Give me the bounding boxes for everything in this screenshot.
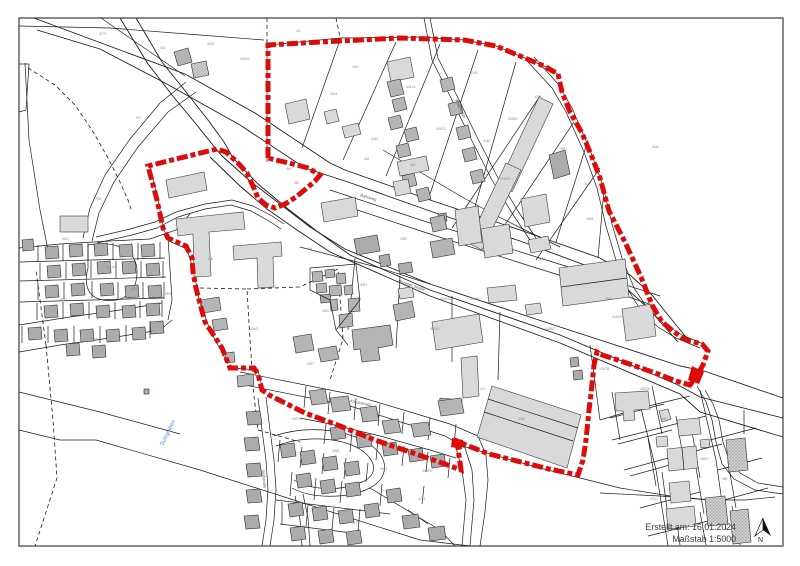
svg-text:463: 463	[410, 163, 416, 167]
svg-text:4040/2: 4040/2	[436, 127, 446, 131]
svg-text:4048: 4048	[538, 257, 545, 261]
svg-text:4049/3: 4049/3	[612, 315, 622, 319]
svg-text:4060/5: 4060/5	[422, 469, 432, 473]
svg-text:4037: 4037	[560, 147, 567, 151]
svg-text:4057: 4057	[62, 237, 69, 241]
svg-text:403: 403	[160, 46, 166, 50]
svg-text:461: 461	[286, 167, 292, 171]
svg-text:462: 462	[364, 157, 370, 161]
svg-text:4061/2: 4061/2	[106, 265, 116, 269]
svg-text:469: 469	[722, 477, 728, 481]
svg-text:4067/2: 4067/2	[292, 417, 302, 421]
svg-text:4072: 4072	[418, 497, 425, 501]
svg-text:4069: 4069	[380, 467, 387, 471]
svg-text:4070: 4070	[300, 507, 307, 511]
svg-text:Maßstab 1:5000: Maßstab 1:5000	[672, 534, 736, 544]
svg-text:468/2: 468/2	[660, 417, 668, 421]
svg-text:4045/2: 4045/2	[240, 57, 250, 61]
svg-text:4047: 4047	[584, 182, 591, 186]
svg-text:411: 411	[296, 29, 301, 33]
svg-text:4052: 4052	[322, 309, 329, 313]
svg-text:4041/1: 4041/1	[406, 85, 416, 89]
svg-text:907: 907	[136, 116, 142, 120]
svg-text:4049/2: 4049/2	[545, 327, 555, 331]
svg-text:4047B: 4047B	[600, 367, 609, 371]
svg-text:4063: 4063	[90, 337, 97, 341]
svg-text:469/2: 469/2	[700, 457, 708, 461]
svg-text:4049/1: 4049/1	[470, 297, 480, 301]
svg-text:474: 474	[480, 387, 486, 391]
svg-text:4061: 4061	[60, 297, 67, 301]
svg-text:4038: 4038	[534, 95, 541, 99]
svg-text:4044: 4044	[330, 92, 337, 96]
svg-text:4042: 4042	[352, 65, 359, 69]
svg-text:4179: 4179	[99, 32, 106, 36]
svg-text:406: 406	[208, 257, 214, 261]
svg-text:N: N	[758, 537, 763, 544]
svg-text:4051: 4051	[360, 283, 367, 287]
svg-text:4646: 4646	[652, 145, 659, 149]
svg-text:4040/5: 4040/5	[500, 177, 510, 181]
svg-text:Erstellt am: 16.01.2024: Erstellt am: 16.01.2024	[646, 522, 737, 532]
svg-text:4038/2: 4038/2	[508, 117, 518, 121]
svg-text:4043: 4043	[371, 137, 378, 141]
svg-text:4060/8: 4060/8	[640, 387, 650, 391]
svg-text:460: 460	[294, 181, 300, 185]
svg-text:4071: 4071	[352, 521, 359, 525]
svg-text:4045: 4045	[207, 42, 214, 46]
svg-text:4062/1: 4062/1	[130, 287, 140, 291]
svg-text:4040: 4040	[483, 139, 490, 143]
svg-text:4050: 4050	[400, 237, 407, 241]
svg-text:4060/2: 4060/2	[430, 327, 440, 331]
svg-text:4068: 4068	[332, 449, 339, 453]
svg-text:4049/5: 4049/5	[440, 297, 450, 301]
svg-text:406/3: 406/3	[250, 327, 258, 331]
svg-text:464: 464	[307, 247, 313, 251]
svg-text:4036: 4036	[586, 217, 593, 221]
svg-text:4060: 4060	[518, 417, 525, 421]
svg-text:4049: 4049	[605, 297, 612, 301]
svg-text:905: 905	[96, 197, 102, 201]
svg-text:470/1: 470/1	[650, 497, 658, 501]
svg-text:4039: 4039	[470, 71, 477, 75]
svg-text:406/2: 406/2	[163, 292, 171, 296]
svg-text:4067: 4067	[307, 362, 314, 366]
